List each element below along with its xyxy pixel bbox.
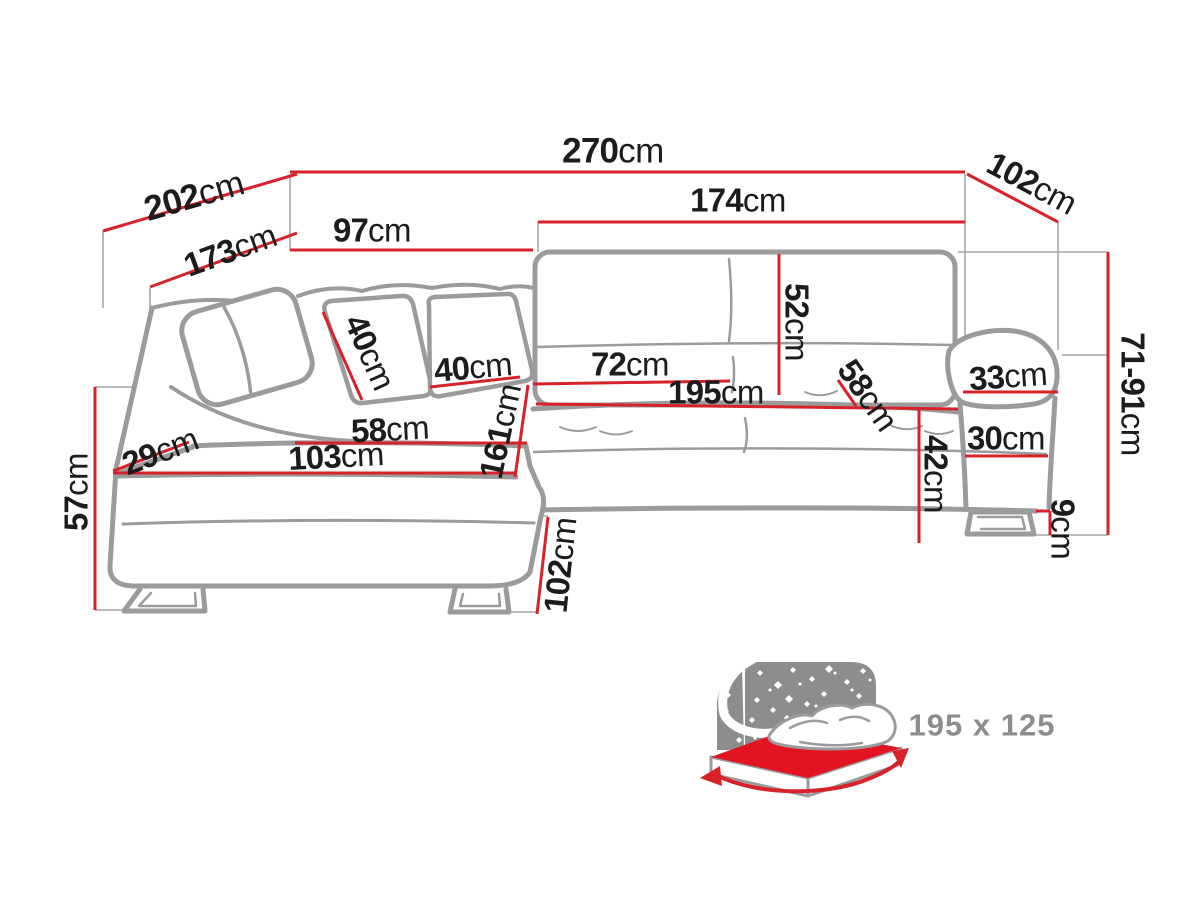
dim-right-section-width: 174cm <box>690 184 786 217</box>
bed-icon <box>700 659 909 796</box>
chaise-leg-left <box>124 589 205 611</box>
dim-back-left-width: 97cm <box>333 214 411 247</box>
dim-chaise-length: 103cm <box>287 437 384 475</box>
dim-sleeping-length: 195cm <box>668 376 764 409</box>
dim-height-range: 71-91cm <box>1117 332 1150 455</box>
right-base-edge <box>536 508 1036 511</box>
dim-leg-height: 9cm <box>1047 499 1080 560</box>
sofa-dimension-diagram: 270cm 202cm 173cm 97cm 174cm 102cm 71-91… <box>0 0 1200 900</box>
dim-side-height: 57cm <box>60 453 93 531</box>
dim-armrest-front-width: 30cm <box>967 422 1045 455</box>
sofa-outline <box>109 252 1057 612</box>
sleeping-area-size-label: 195 x 125 <box>909 710 1056 741</box>
dim-seat-cushion-width: 72cm <box>591 348 669 381</box>
dim-armrest-top-width: 33cm <box>968 357 1048 395</box>
dim-backrest-height: 52cm <box>781 283 814 361</box>
dim-overall-top-width: 270cm <box>562 134 664 169</box>
dim-pillow-width: 40cm <box>433 347 514 387</box>
headrest <box>177 285 317 410</box>
dim-seat-height: 42cm <box>920 435 953 513</box>
